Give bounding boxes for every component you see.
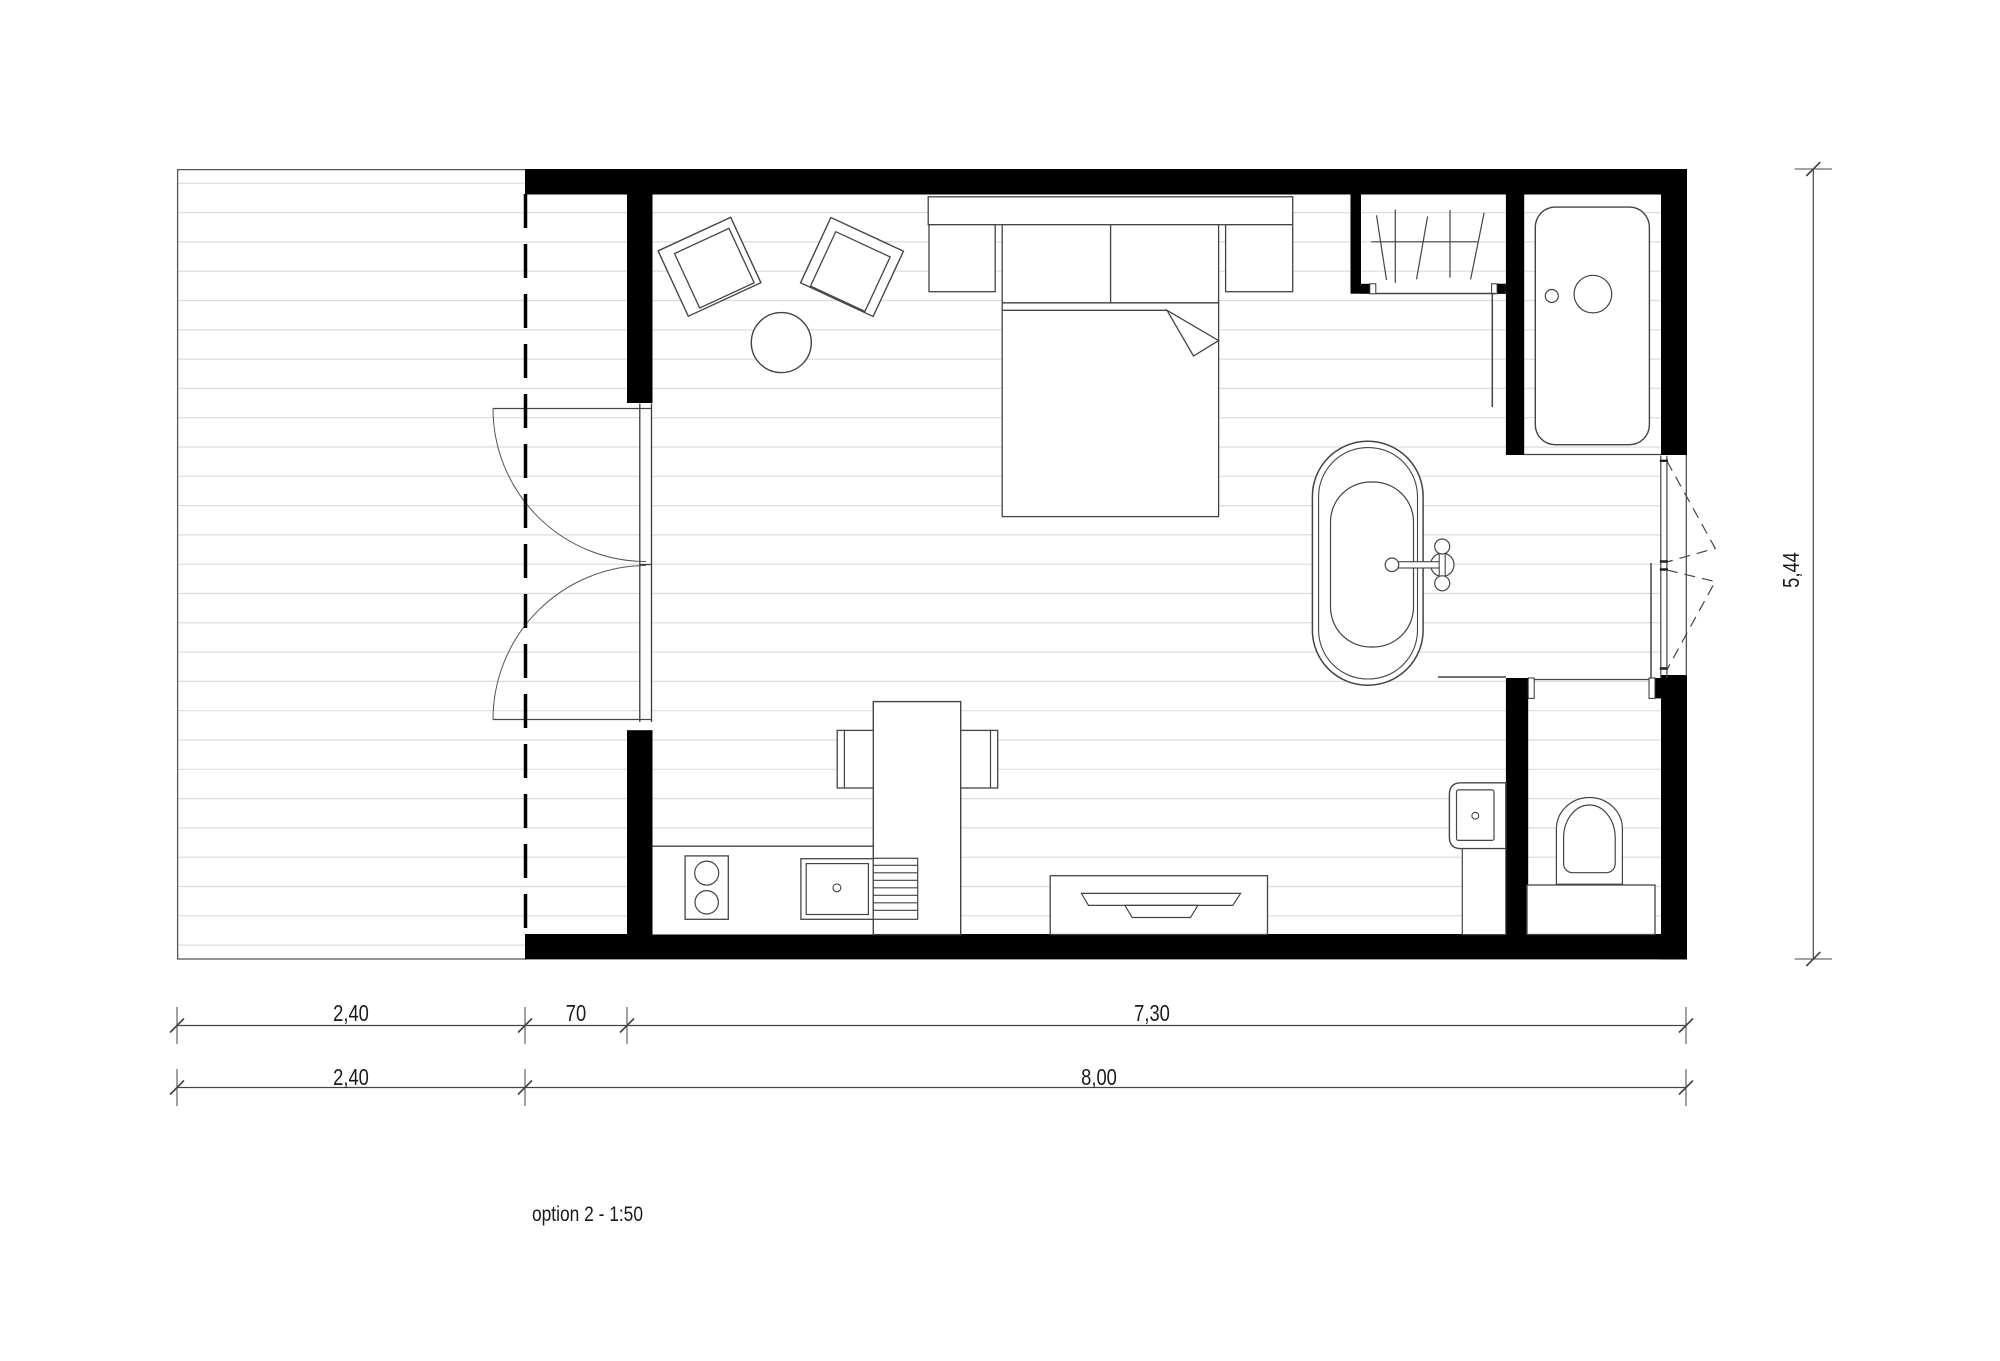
svg-text:2,40: 2,40: [333, 1065, 369, 1091]
svg-text:7,30: 7,30: [1134, 1001, 1170, 1027]
svg-text:2,40: 2,40: [333, 1001, 369, 1027]
svg-text:5,44: 5,44: [1779, 552, 1805, 588]
svg-text:70: 70: [566, 1001, 586, 1027]
svg-text:8,00: 8,00: [1081, 1065, 1117, 1091]
svg-text:option 2 - 1:50: option 2 - 1:50: [532, 1202, 643, 1226]
